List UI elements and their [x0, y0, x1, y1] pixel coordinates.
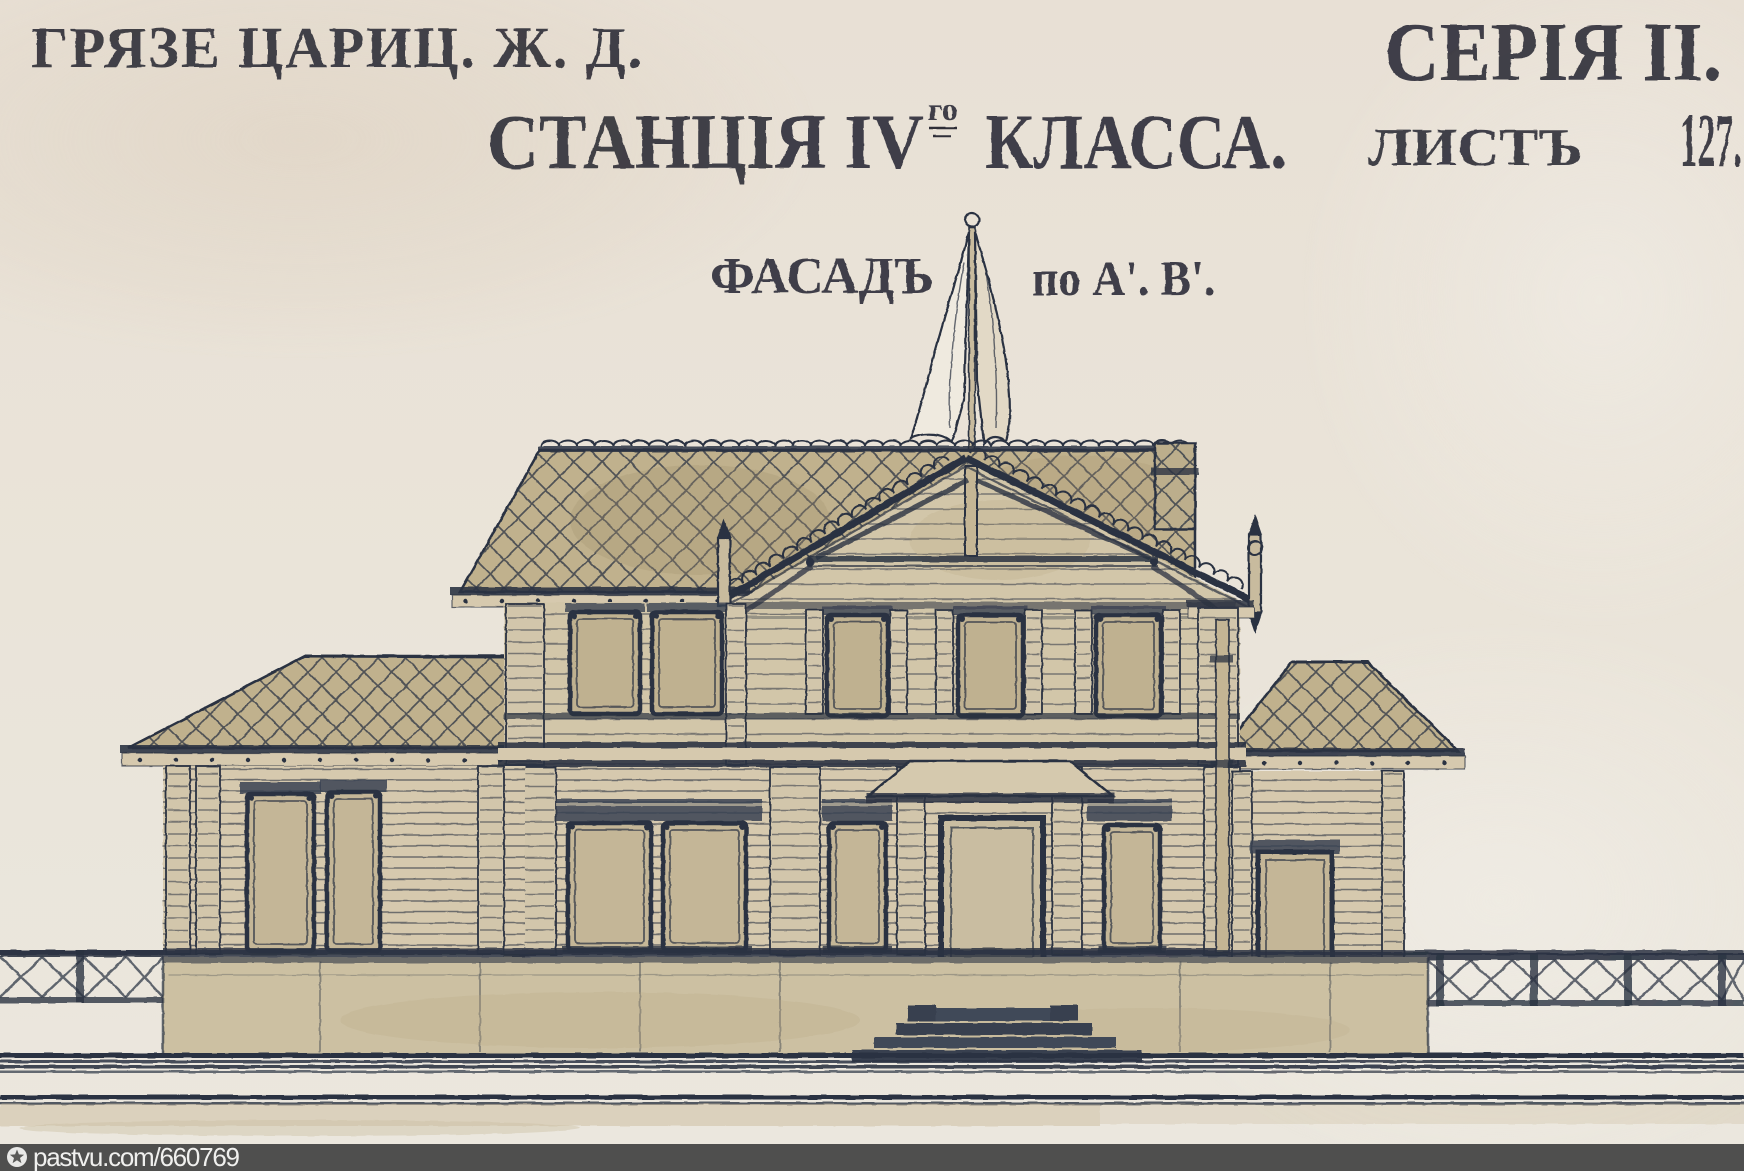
svg-text:го: го: [928, 91, 958, 127]
svg-text:СЕРІЯ II.: СЕРІЯ II.: [1384, 6, 1722, 99]
svg-text:по А'. В'.: по А'. В'.: [1032, 250, 1215, 306]
svg-text:ФАСАДЪ: ФАСАДЪ: [710, 248, 934, 305]
svg-text:127.: 127.: [1680, 99, 1742, 183]
svg-text:СТАНЦІЯ IV: СТАНЦІЯ IV: [487, 98, 924, 185]
svg-text:pastvu.com/660769: pastvu.com/660769: [33, 1142, 240, 1171]
svg-text:КЛАССА.: КЛАССА.: [985, 98, 1287, 185]
svg-text:ЛИСТЪ: ЛИСТЪ: [1368, 119, 1583, 177]
svg-text:ГРЯЗЕ ЦАРИЦ. Ж. Д.: ГРЯЗЕ ЦАРИЦ. Ж. Д.: [31, 15, 642, 80]
